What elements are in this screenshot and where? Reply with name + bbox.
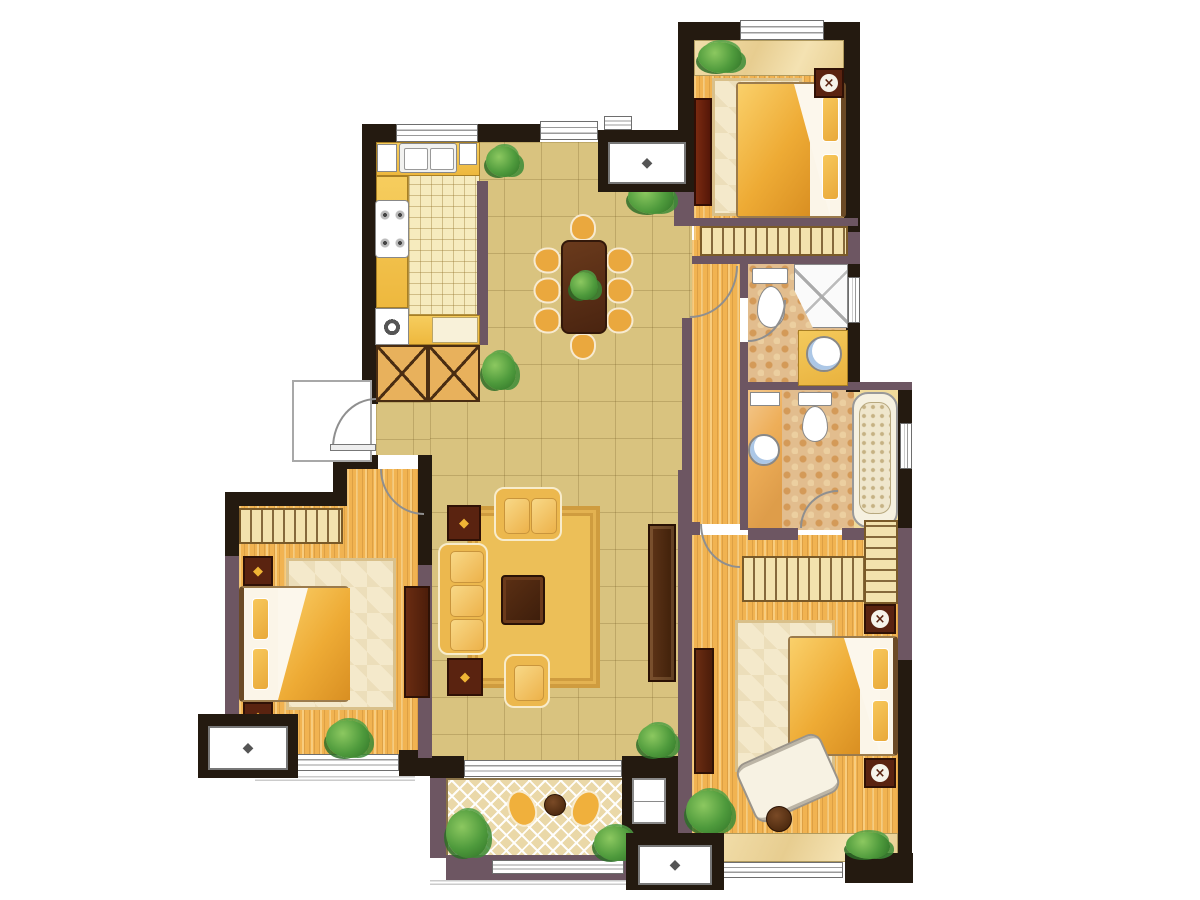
ac-niche-vent-window xyxy=(604,116,632,130)
bathtub-mat xyxy=(859,402,891,514)
cooktop-4-burner xyxy=(375,200,409,258)
partition-wall xyxy=(678,470,692,758)
armchair-cushion xyxy=(504,498,530,534)
partition-wall xyxy=(740,390,748,530)
dining-chair xyxy=(534,278,561,304)
round-sink xyxy=(806,336,842,372)
armchair-bottom xyxy=(504,654,550,708)
dining-chair xyxy=(607,278,634,304)
bay-plant xyxy=(846,832,890,859)
partition-wall xyxy=(430,778,446,858)
wardrobe-hangers xyxy=(742,556,868,602)
entry-shoe-cabinet xyxy=(428,345,480,402)
dining-chair xyxy=(607,248,634,274)
living-room-plant xyxy=(638,724,676,758)
pillow xyxy=(252,648,269,690)
lamp-top-icon: × xyxy=(871,764,889,782)
round-sink xyxy=(748,434,780,466)
pillow xyxy=(822,96,839,142)
pillow xyxy=(872,648,889,690)
sink-basin xyxy=(404,148,428,170)
wall xyxy=(844,22,860,234)
balcony-plant xyxy=(446,810,488,858)
wall xyxy=(430,756,464,778)
balcony-railing xyxy=(492,860,624,874)
sink-basin xyxy=(430,148,454,170)
nightstand-lamp: × xyxy=(814,68,844,98)
partition-wall xyxy=(740,264,748,298)
sofa-cushion xyxy=(450,619,484,651)
sofa-cushion xyxy=(450,585,484,617)
ac-fan-icon: ◆ xyxy=(670,857,681,873)
dining-chair xyxy=(534,248,561,274)
entry-walkway-floor xyxy=(376,402,430,455)
dresser xyxy=(404,586,430,698)
bedroom-plant xyxy=(326,720,370,758)
ac-fan-icon: ◆ xyxy=(243,740,254,756)
lamp-top-icon: × xyxy=(820,74,838,92)
pillow xyxy=(252,598,269,640)
armchair-cushion xyxy=(514,665,544,701)
bedroom-top-right-window xyxy=(740,20,824,40)
ac-outdoor-unit: ◆ xyxy=(638,845,712,885)
sofa-cushion xyxy=(450,551,484,583)
partition-wall xyxy=(225,556,239,718)
master-bedroom-plant xyxy=(686,790,732,834)
ac-outdoor-unit: ◆ xyxy=(208,726,288,770)
ac-outdoor-unit: ◆ xyxy=(608,142,686,184)
bed-blanket xyxy=(738,84,810,216)
wall xyxy=(898,655,912,860)
prep-board xyxy=(432,317,478,343)
wall xyxy=(225,492,347,506)
toilet-bowl xyxy=(802,406,828,442)
lamp-star-icon: ◆ xyxy=(459,516,469,531)
dining-chair xyxy=(570,214,596,241)
dining-window xyxy=(540,121,598,140)
balcony-sliding-door xyxy=(464,760,622,777)
bathroom-1-window xyxy=(848,277,860,323)
wardrobe-hangers xyxy=(864,520,898,604)
hall-plant xyxy=(482,352,516,390)
armchair-top xyxy=(494,487,562,541)
kitchen-double-sink xyxy=(399,143,457,173)
master-cabinet xyxy=(694,648,714,774)
ac-fan-icon: ◆ xyxy=(642,155,653,171)
wall xyxy=(478,124,540,142)
washing-machine xyxy=(375,308,409,345)
double-bed xyxy=(736,82,846,218)
double-bed xyxy=(239,586,349,702)
lamp-top-icon: × xyxy=(871,610,889,628)
tall-dresser xyxy=(694,98,712,206)
master-bedroom-window xyxy=(715,862,843,878)
entry-shoe-cabinet xyxy=(376,345,428,402)
wall xyxy=(225,492,239,556)
dining-chair xyxy=(534,308,561,334)
floor-plan-canvas: ◆ ◆ × ◆ ◆ xyxy=(0,0,1200,900)
wardrobe-hangers xyxy=(239,508,343,544)
side-lamp-table: ◆ xyxy=(447,658,483,696)
partition-wall xyxy=(674,190,694,226)
kitchen-small-sink xyxy=(459,143,477,165)
nightstand-lamp: × xyxy=(864,604,896,634)
round-side-table xyxy=(766,806,792,832)
nightstand: ◆ xyxy=(243,556,273,586)
bathtub xyxy=(852,392,898,528)
table-centerpiece-plant xyxy=(570,272,598,300)
dining-plant xyxy=(486,146,520,177)
dining-chair xyxy=(607,308,634,334)
bedroom-bay-plant xyxy=(698,42,742,73)
balcony-round-table xyxy=(544,794,566,816)
tv-cabinet xyxy=(648,524,676,682)
pillow xyxy=(872,700,889,742)
balcony-storage-cabinet xyxy=(632,778,666,824)
side-lamp-table: ◆ xyxy=(447,505,481,541)
toilet-tank xyxy=(752,268,788,284)
coffee-table xyxy=(501,575,545,625)
bath-shelf xyxy=(750,392,780,406)
partition-wall xyxy=(748,528,798,540)
partition-wall xyxy=(692,256,858,264)
wardrobe-hangers xyxy=(700,226,848,256)
kitchen-tile-area xyxy=(408,172,480,315)
three-seat-sofa xyxy=(438,543,488,655)
kitchen-window xyxy=(396,124,478,142)
lamp-star-icon: ◆ xyxy=(460,670,470,685)
entry-door-leaf xyxy=(330,444,376,451)
nightstand-lamp: × xyxy=(864,758,896,788)
kitchen-appliance xyxy=(377,144,397,172)
partition-wall xyxy=(898,535,912,660)
star-icon: ◆ xyxy=(253,564,263,579)
partition-wall xyxy=(694,218,858,226)
dining-chair xyxy=(570,333,596,360)
toilet-tank xyxy=(798,392,832,406)
armchair-cushion xyxy=(531,498,557,534)
bathroom-2-window xyxy=(900,423,912,469)
wall xyxy=(678,22,694,134)
pillow xyxy=(822,154,839,200)
